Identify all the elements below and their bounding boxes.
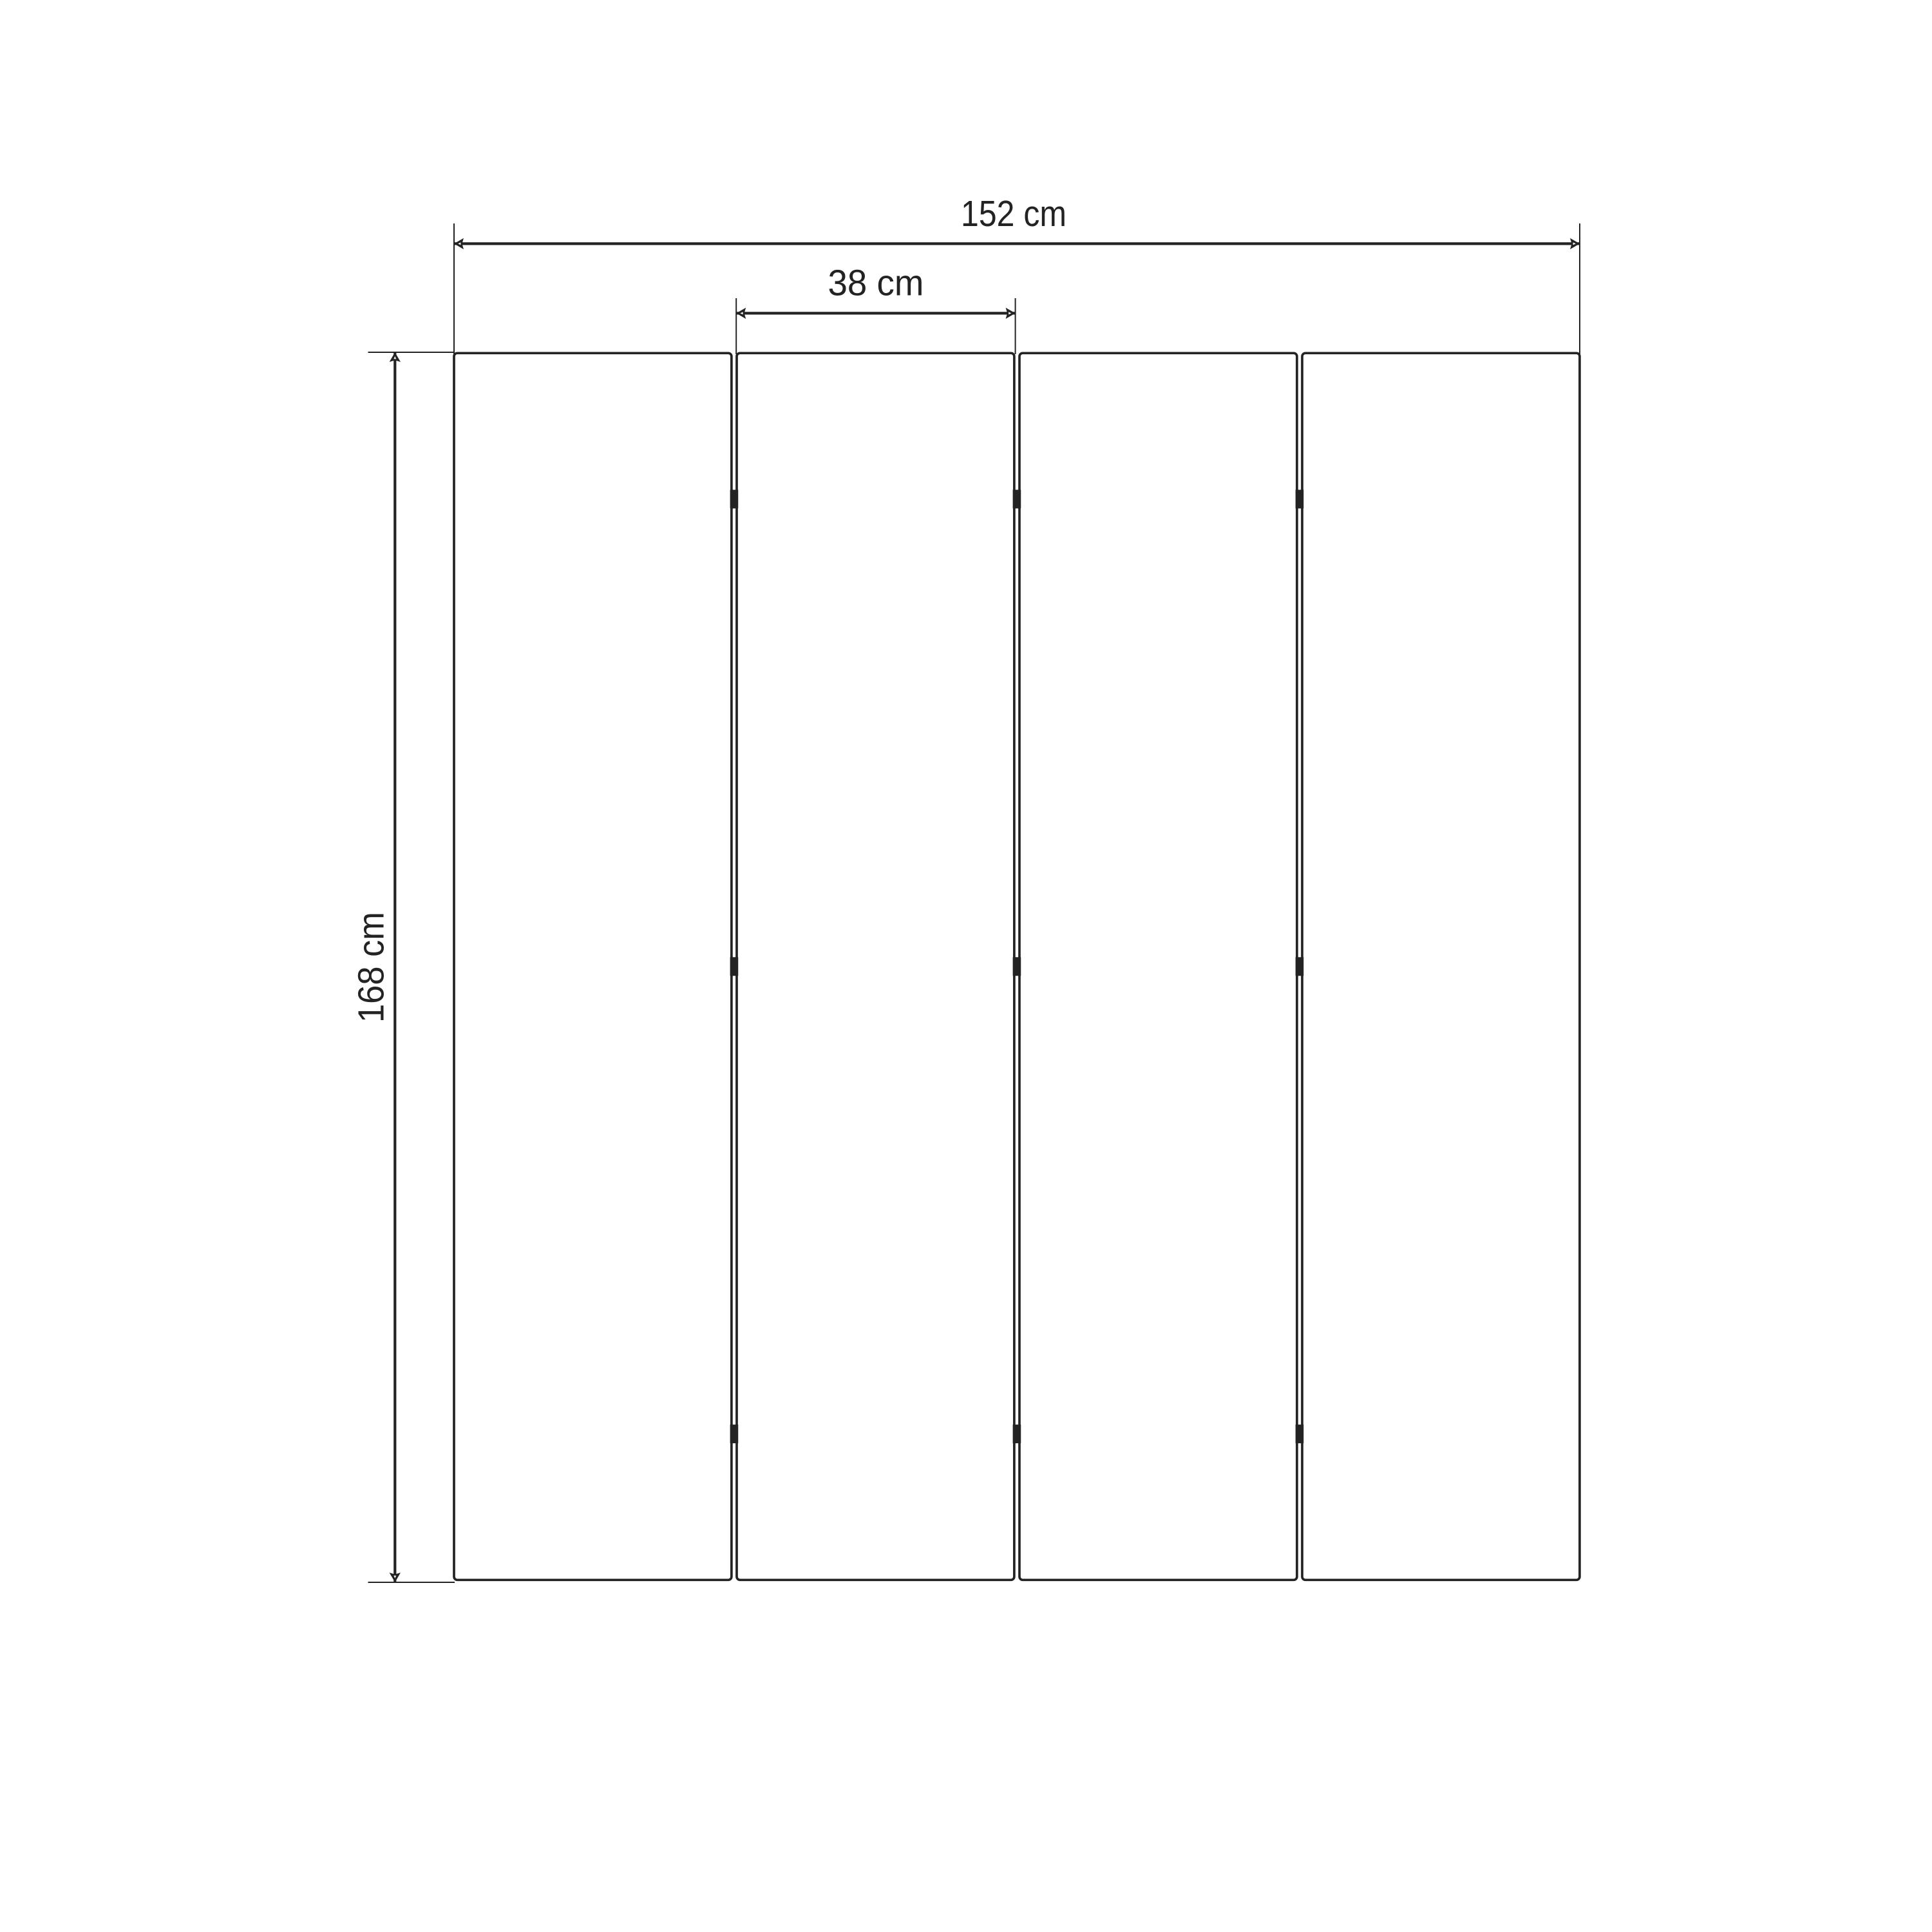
svg-text:168 cm: 168 cm (350, 912, 392, 1023)
svg-text:38 cm: 38 cm (828, 262, 924, 303)
svg-text:152 cm: 152 cm (961, 193, 1066, 234)
